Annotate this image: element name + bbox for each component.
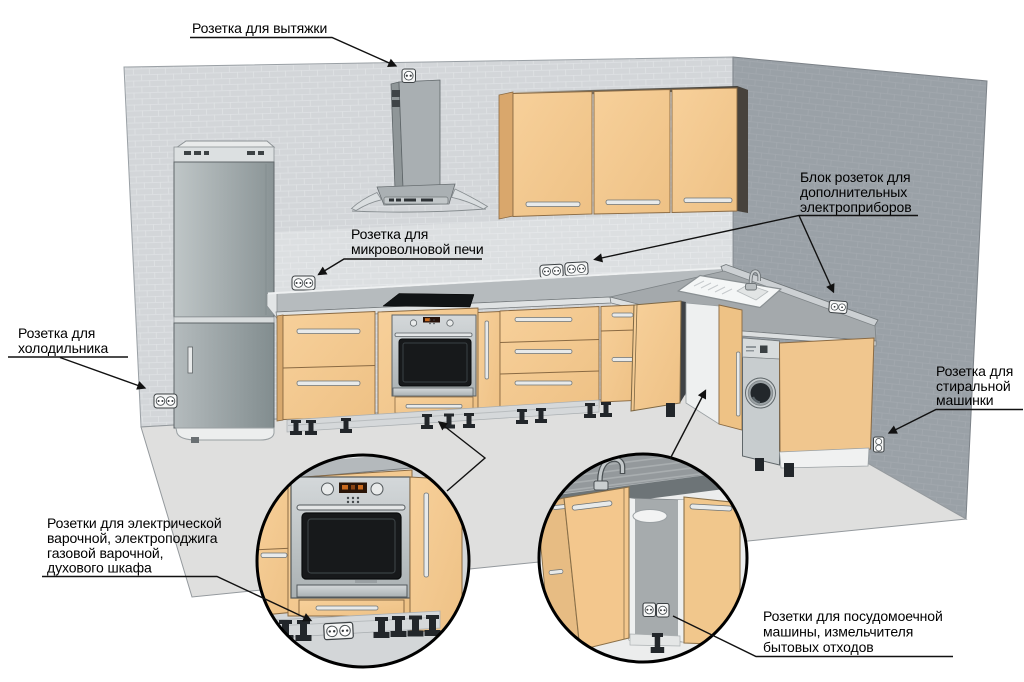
svg-text:бытовых отходов: бытовых отходов (763, 639, 874, 655)
svg-text:электроприборов: электроприборов (800, 199, 912, 215)
svg-text:Розетка для: Розетка для (18, 325, 95, 341)
svg-text:Розетки для электрической: Розетки для электрической (47, 515, 222, 531)
svg-text:Розетка для: Розетка для (351, 226, 428, 242)
svg-text:варочной, электроподжига: варочной, электроподжига (47, 530, 218, 546)
svg-text:Розетка для вытяжки: Розетка для вытяжки (192, 20, 327, 36)
svg-text:микроволновой печи: микроволновой печи (351, 241, 484, 257)
svg-text:Розетки для посудомоечной: Розетки для посудомоечной (763, 608, 943, 624)
svg-text:машины, измельчителя: машины, измельчителя (763, 624, 913, 640)
svg-text:машинки: машинки (936, 392, 993, 408)
svg-text:духового шкафа: духового шкафа (47, 560, 152, 576)
svg-text:дополнительных: дополнительных (800, 184, 907, 200)
svg-text:холодильника: холодильника (18, 340, 108, 356)
svg-text:Блок розеток для: Блок розеток для (800, 169, 911, 185)
svg-text:Розетка для: Розетка для (936, 363, 1013, 379)
